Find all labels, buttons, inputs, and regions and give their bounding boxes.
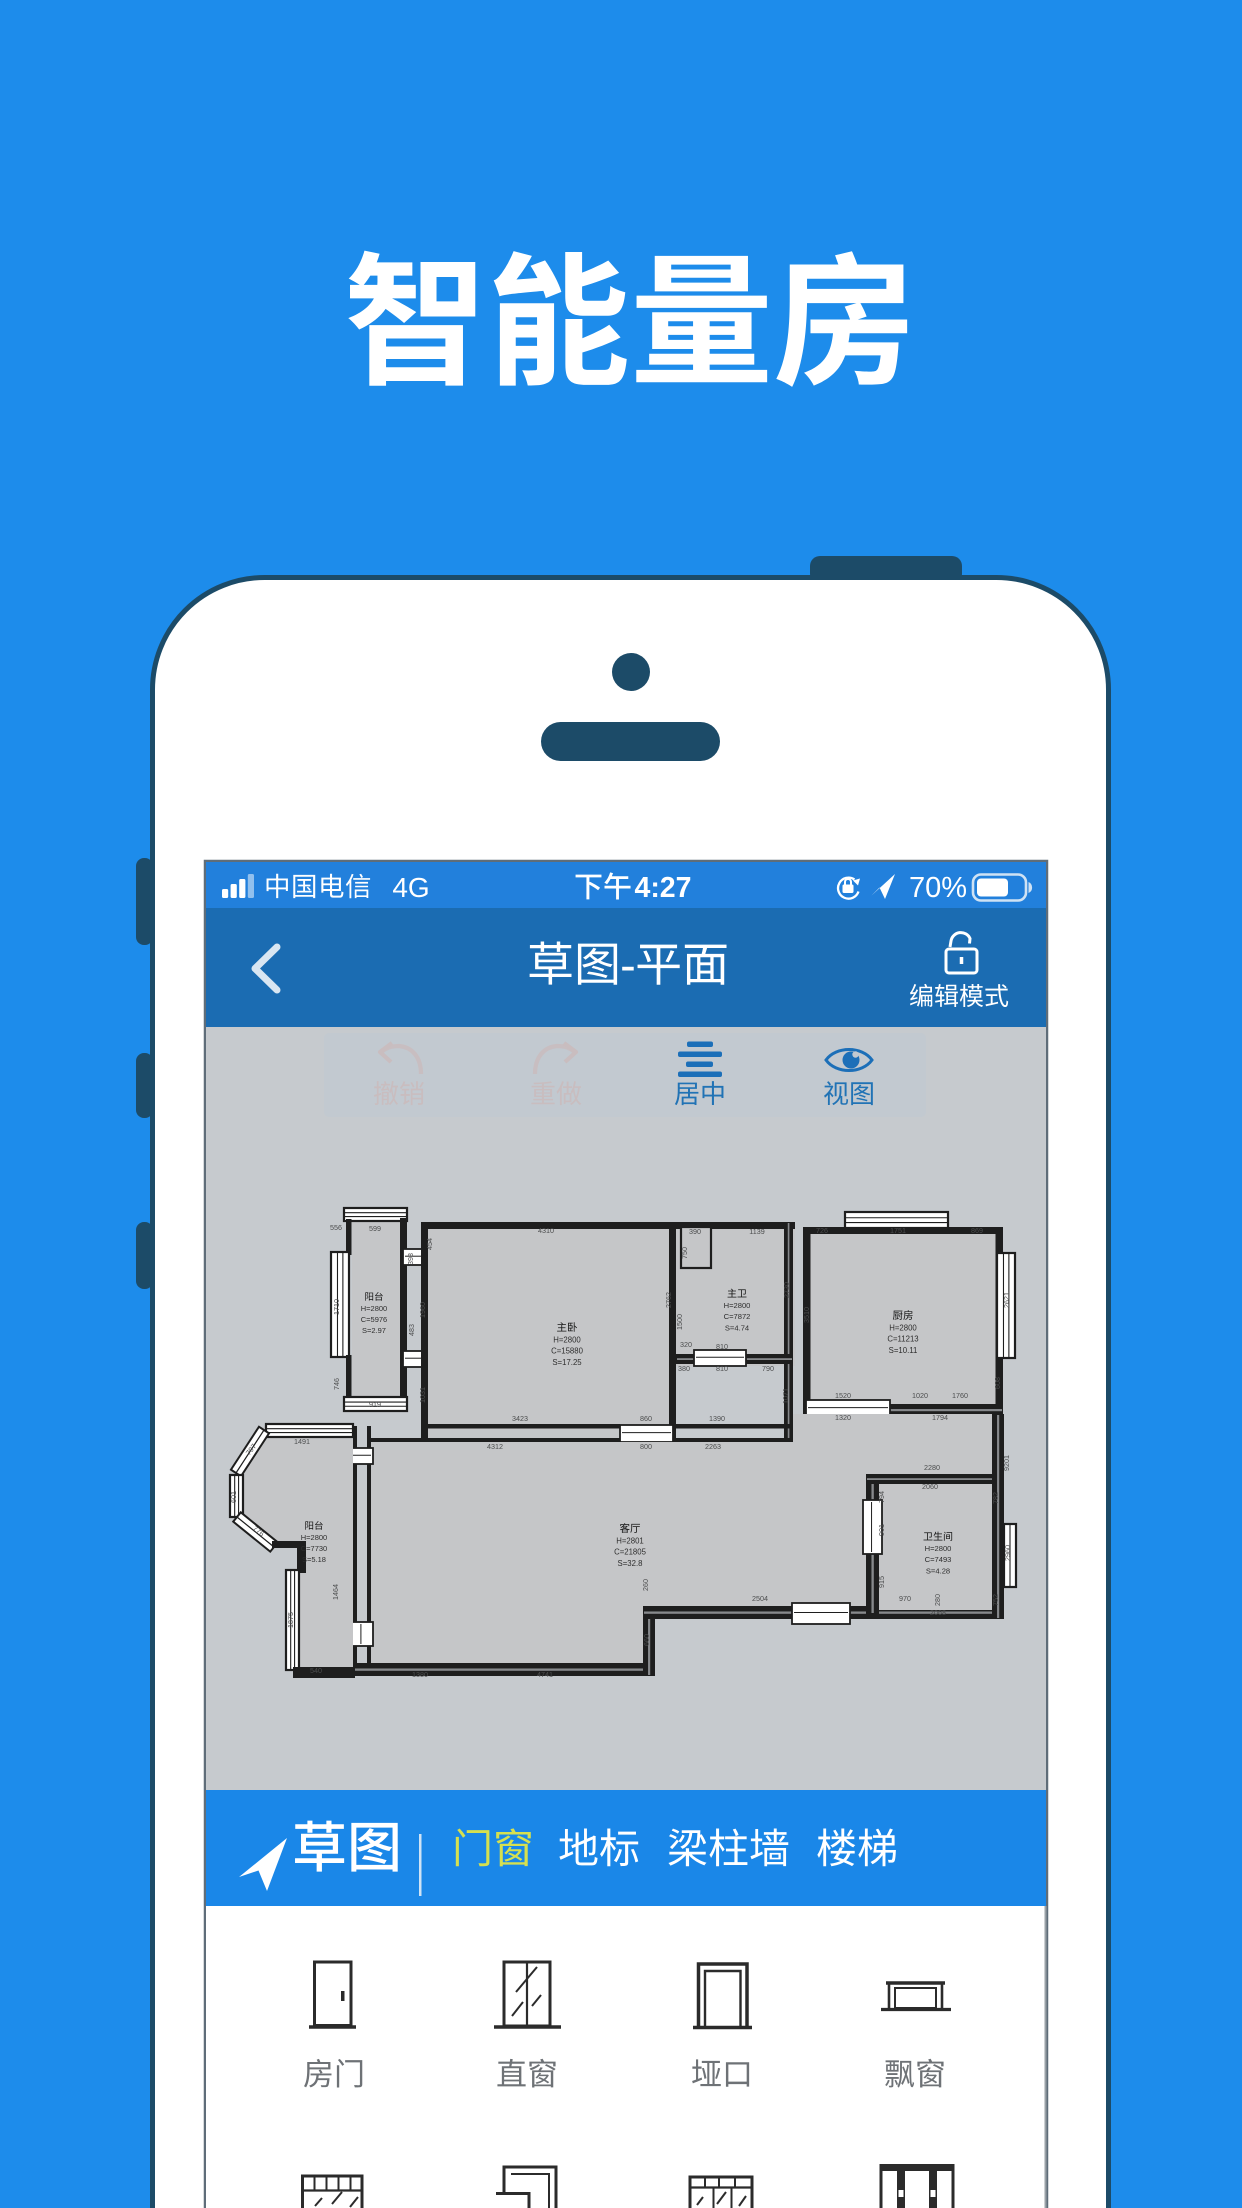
svg-text:1390: 1390 [709,1414,725,1423]
svg-text:901: 901 [877,1524,886,1536]
svg-text:S=2.97: S=2.97 [362,1326,386,1335]
svg-text:C=5976: C=5976 [361,1315,387,1324]
svg-text:726: 726 [816,1226,828,1235]
svg-text:-: - [620,938,636,991]
svg-text:810: 810 [716,1364,728,1373]
svg-text:9201: 9201 [1002,1455,1011,1471]
svg-text:H=2800: H=2800 [553,1335,581,1344]
svg-text:S=5.18: S=5.18 [302,1555,326,1564]
svg-text:750: 750 [680,1247,689,1259]
svg-text:2762: 2762 [664,1292,673,1308]
svg-text:3510: 3510 [802,1307,811,1323]
svg-text:601: 601 [229,1491,238,1503]
svg-text:752: 752 [991,1594,1000,1606]
svg-text:1020: 1020 [912,1391,928,1400]
svg-text:H=2801: H=2801 [616,1536,644,1545]
svg-text:810: 810 [716,1342,728,1351]
svg-text:1464: 1464 [331,1584,340,1600]
svg-text:1710: 1710 [332,1299,341,1315]
svg-text:2730: 2730 [782,1282,791,1298]
svg-text:1320: 1320 [835,1413,851,1422]
svg-text:H=2800: H=2800 [889,1323,917,1332]
svg-text:2263: 2263 [705,1442,721,1451]
svg-text:2060: 2060 [922,1482,938,1491]
svg-text:380: 380 [678,1364,690,1373]
svg-text:4:27: 4:27 [634,872,691,904]
svg-text:320: 320 [680,1340,692,1349]
svg-text:H=2800: H=2800 [925,1544,952,1553]
svg-text:790: 790 [762,1364,774,1373]
svg-text:4312: 4312 [487,1442,503,1451]
svg-text:C=7493: C=7493 [925,1555,952,1564]
svg-text:390: 390 [689,1227,701,1236]
svg-text:2504: 2504 [752,1594,768,1603]
svg-text:H=2800: H=2800 [361,1304,387,1313]
svg-text:2621: 2621 [1002,1292,1011,1308]
svg-text:869: 869 [971,1226,983,1235]
svg-text:398: 398 [406,1253,415,1265]
svg-text:1031: 1031 [418,1387,427,1403]
svg-text:608: 608 [993,1377,1002,1389]
svg-text:1960: 1960 [418,1302,427,1318]
svg-text:556: 556 [330,1223,342,1232]
svg-text:C=15880: C=15880 [551,1347,584,1356]
svg-text:260: 260 [641,1579,650,1591]
svg-text:C=7730: C=7730 [301,1544,327,1553]
svg-text:1500: 1500 [675,1314,684,1330]
svg-text:4310: 4310 [538,1226,554,1235]
svg-text:454: 454 [425,1238,434,1250]
svg-text:1380: 1380 [412,1670,428,1679]
svg-text:2068: 2068 [930,1608,946,1617]
svg-text:483: 483 [407,1324,416,1336]
svg-text:4741: 4741 [537,1670,553,1679]
svg-text:1760: 1760 [952,1391,968,1400]
svg-text:C=21805: C=21805 [614,1548,647,1557]
svg-text:2960: 2960 [1003,1545,1012,1561]
svg-text:970: 970 [899,1594,911,1603]
svg-text:1794: 1794 [932,1413,948,1422]
svg-text:S=4.28: S=4.28 [926,1566,950,1575]
svg-text:1139: 1139 [749,1227,764,1236]
svg-text:746: 746 [332,1378,341,1390]
svg-text:3423: 3423 [512,1414,528,1423]
svg-text:915: 915 [877,1576,886,1588]
svg-text:H=2800: H=2800 [301,1533,327,1542]
svg-text:C=7872: C=7872 [724,1312,751,1321]
svg-text:660: 660 [642,1634,651,1646]
svg-text:4G: 4G [392,872,429,903]
svg-text:S=32.8: S=32.8 [618,1559,643,1568]
svg-text:794: 794 [877,1491,886,1503]
svg-text:280: 280 [933,1594,942,1606]
svg-text:1491: 1491 [294,1437,310,1446]
svg-text:800: 800 [640,1442,652,1451]
svg-text:919: 919 [369,1400,381,1409]
svg-text:C=11213: C=11213 [887,1335,918,1344]
svg-text:2280: 2280 [924,1463,940,1472]
svg-text:S=4.74: S=4.74 [725,1323,749,1332]
svg-text:1071: 1071 [781,1388,790,1404]
svg-text:782: 782 [991,1492,1000,1504]
svg-text:860: 860 [640,1414,652,1423]
svg-text:H=2800: H=2800 [724,1301,751,1310]
svg-text:1520: 1520 [835,1391,851,1400]
svg-text:70%: 70% [909,872,967,904]
svg-text:1751: 1751 [890,1226,906,1235]
svg-text:1875: 1875 [286,1612,295,1628]
svg-text:599: 599 [369,1224,381,1233]
svg-text:540: 540 [310,1666,322,1675]
svg-text:S=10.11: S=10.11 [889,1346,918,1355]
svg-text:S=17.25: S=17.25 [552,1358,582,1367]
